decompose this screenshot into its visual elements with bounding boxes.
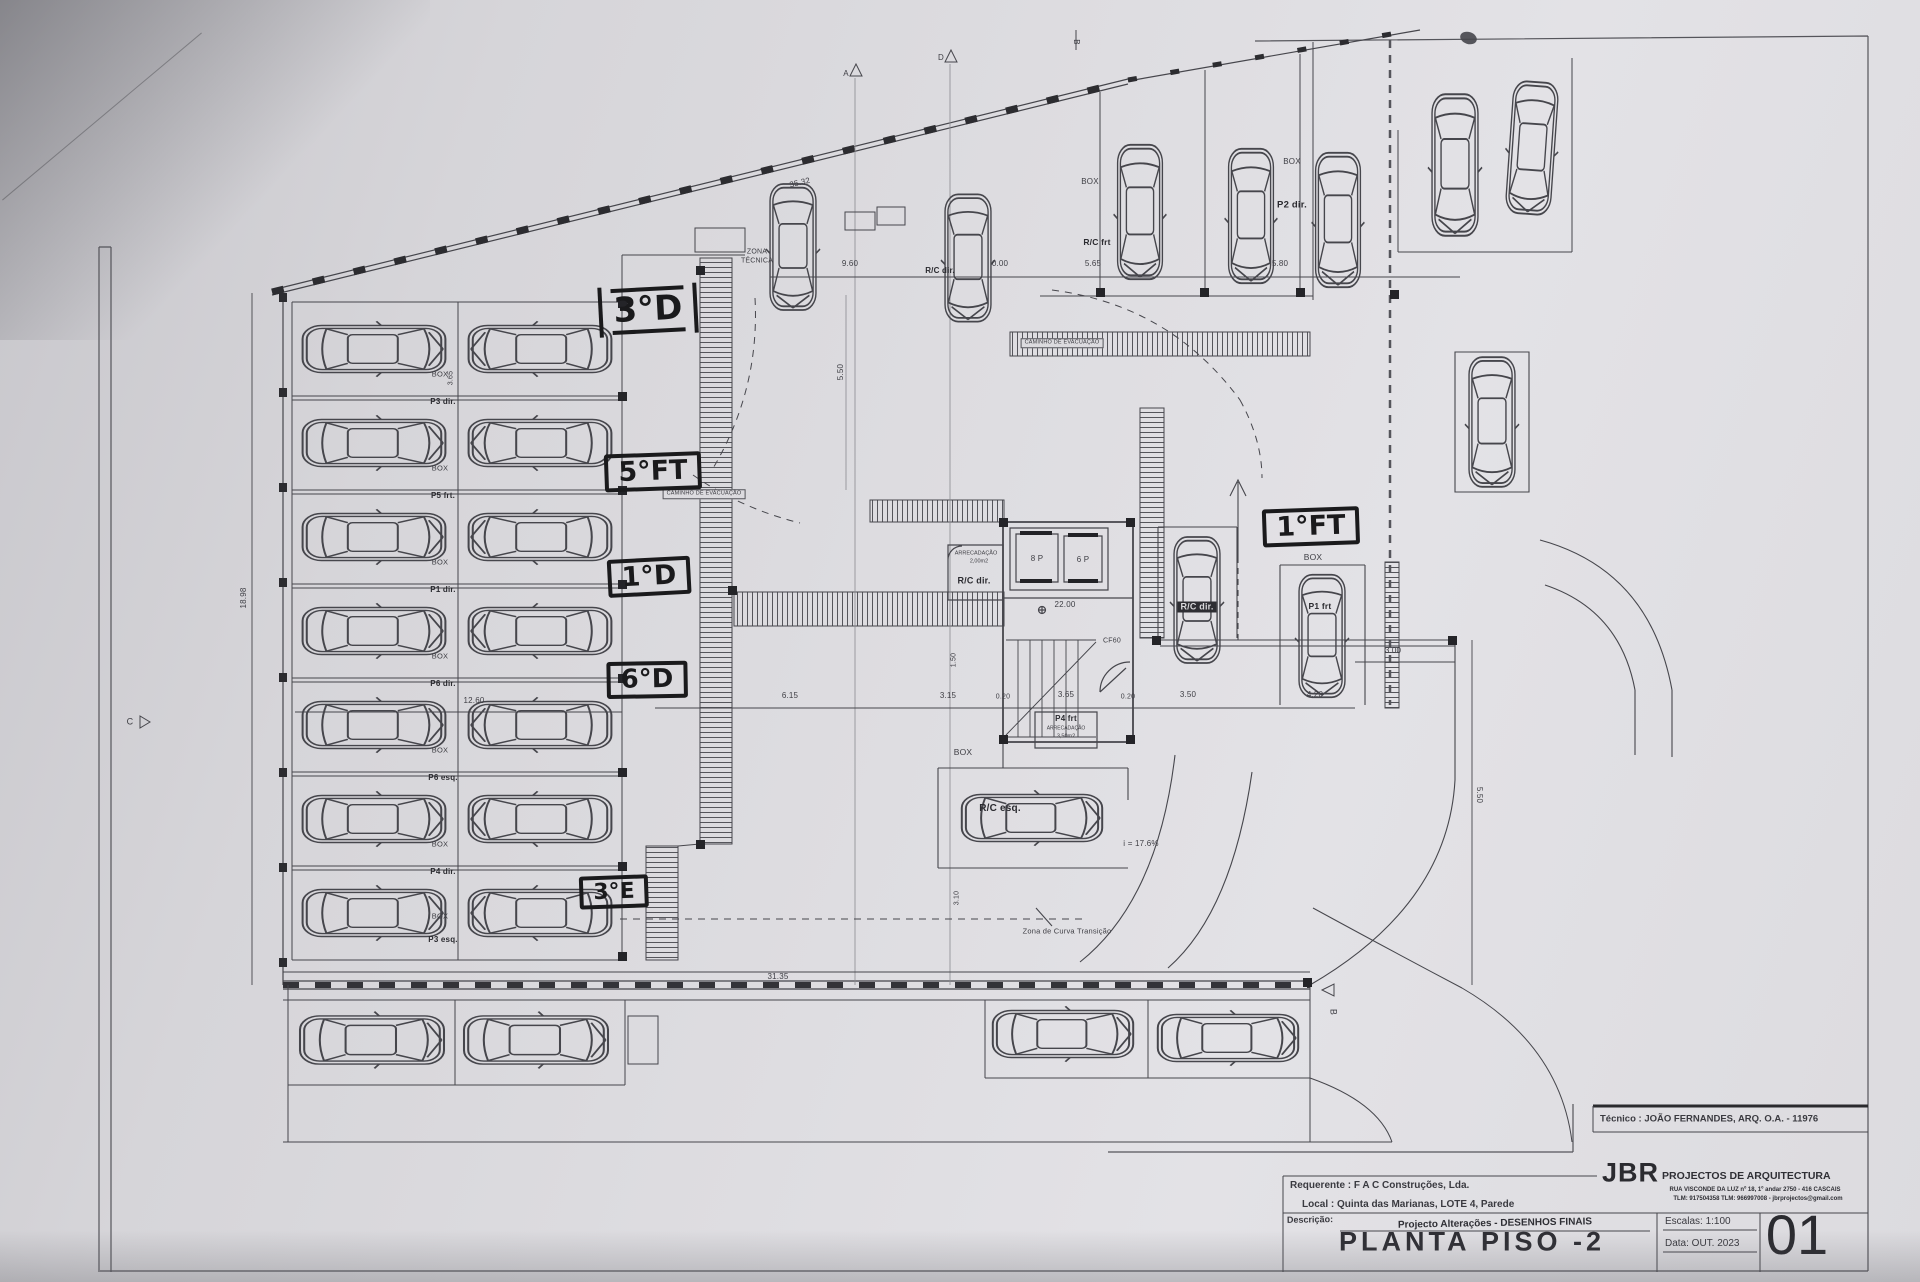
unit-label: P1 frt xyxy=(1309,602,1332,611)
box-label: BOX xyxy=(432,558,448,566)
evacuation-path-label: CAMINHO DE EVACUAÇÃO xyxy=(1021,338,1104,348)
door-label: CF60 xyxy=(1103,638,1121,645)
car-icon xyxy=(962,790,1102,845)
car-icon xyxy=(993,1006,1133,1061)
unit-label: P2 dir. xyxy=(1277,200,1307,210)
dimension-lines xyxy=(252,277,1650,1231)
car-icon xyxy=(1295,575,1349,697)
bottom-strip xyxy=(283,908,1572,1142)
dim-label: 12.60 xyxy=(463,697,484,705)
box-label: BOX xyxy=(1081,178,1099,186)
handwritten-unit-3e: 3°E xyxy=(579,874,649,909)
car-icon xyxy=(1114,145,1167,279)
handwritten-unit-5ft: 5°FT xyxy=(604,451,702,493)
car-icon xyxy=(1312,153,1365,287)
dim-label: 1.50 xyxy=(951,653,958,667)
unit-label: R/C dir. xyxy=(957,577,990,586)
car-icon xyxy=(1225,149,1278,283)
car-icon xyxy=(1501,80,1563,215)
dim-label: 0.20 xyxy=(996,694,1010,701)
dim-label: 5.50 xyxy=(837,364,845,380)
unit-label: P6 dir. xyxy=(430,680,455,688)
dim-label: 5.65 xyxy=(1085,260,1101,268)
car-icon xyxy=(766,184,820,310)
car-icon xyxy=(1465,357,1519,487)
car-icon xyxy=(469,603,612,658)
evacuation-path-label: CAMINHO DE EVACUAÇÃO xyxy=(663,489,746,499)
box-label: BOX xyxy=(432,464,448,472)
box-label: BOX xyxy=(432,746,448,754)
box-label: BOX xyxy=(1304,553,1323,562)
marker-b-top: B xyxy=(1072,39,1080,45)
box-label: BOX xyxy=(1283,158,1301,166)
car-icon xyxy=(469,697,612,752)
dim-label: 9.60 xyxy=(842,260,858,268)
firm-contacts: TLM: 917504358 TLM: 966997008 - jbrproje… xyxy=(1673,1196,1842,1202)
box-label: BOX xyxy=(432,370,448,378)
date-line: Data: OUT. 2023 xyxy=(1665,1239,1739,1249)
requerente-line: Requerente : F A C Construções, Lda. xyxy=(1290,1181,1469,1191)
curve-zone-label: Zona de Curva Transição xyxy=(1023,927,1112,935)
unit-label: P5 frt. xyxy=(431,492,455,500)
unit-label: R/C frt xyxy=(1083,238,1110,247)
dim-label: 3.65 xyxy=(1058,691,1074,699)
box-label: BOX xyxy=(954,748,973,757)
unit-label: P6 esq. xyxy=(428,774,457,782)
storage-label: ARRECADAÇÃO xyxy=(1047,727,1086,732)
marker-b-bottom: B xyxy=(1329,1009,1338,1015)
storage-label: ARRECADAÇÃO xyxy=(955,551,997,557)
car-icon xyxy=(303,321,446,376)
ramp-slope-label: i = 17.6% xyxy=(1123,840,1158,848)
dim-label: 0.20 xyxy=(1121,694,1135,701)
dim-bottom-boundary: 31.35 xyxy=(767,973,788,981)
dim-label: 5.50 xyxy=(1475,787,1483,803)
dim-label: 3.50 xyxy=(1180,691,1196,699)
dim-label: 5.80 xyxy=(1272,260,1288,268)
cars-layer xyxy=(300,80,1563,1068)
dim-left-boundary: 18.98 xyxy=(240,587,248,608)
storage-area-label: 3,50m2 xyxy=(1057,734,1075,740)
storage-area-label: 2,00m2 xyxy=(970,559,988,565)
dim-label: 3.65 xyxy=(448,371,455,385)
car-icon xyxy=(464,1012,608,1069)
car-icon xyxy=(469,509,612,564)
marker-c: C xyxy=(127,718,134,727)
box-label: BOX xyxy=(432,912,448,920)
tecnico-line: Técnico : JOÃO FERNANDES, ARQ. O.A. - 11… xyxy=(1600,1114,1818,1124)
dim-label: 3.00 xyxy=(1385,647,1401,655)
floor-plan-linework xyxy=(0,0,1920,1282)
marker-d: D xyxy=(938,54,944,62)
tecnica-label: TÉCNICA xyxy=(741,258,773,265)
photographed-floor-plan-sheet: 35.32 ZONA TÉCNICA 9.60 0.00 5.65 5.80 1… xyxy=(0,0,1920,1282)
handwritten-unit-1ft: 1°FT xyxy=(1262,506,1360,548)
car-icon xyxy=(1170,537,1224,663)
car-icon xyxy=(303,791,446,846)
unit-label: P4 dir. xyxy=(430,868,455,876)
car-icon xyxy=(469,791,612,846)
car-icon xyxy=(469,415,612,470)
handwritten-unit-1d: 1°D xyxy=(607,556,692,599)
car-icon xyxy=(303,885,446,940)
box-label: BOX xyxy=(432,652,448,660)
unit-label: P3 esq. xyxy=(428,936,457,944)
walls-right xyxy=(1158,352,1672,985)
marker-a: A xyxy=(843,70,849,78)
unit-label: P1 dir. xyxy=(430,586,455,594)
drawing-title: PLANTA PISO -2 xyxy=(1339,1229,1605,1256)
level-label: 22.00 xyxy=(1054,601,1075,609)
descricao-label: Descrição: xyxy=(1287,1215,1333,1225)
car-icon xyxy=(303,509,446,564)
car-icon xyxy=(1428,94,1482,236)
unit-label: P3 dir. xyxy=(430,398,455,406)
car-icon xyxy=(300,1012,444,1069)
lift-label: 8 P xyxy=(1031,555,1044,563)
scale-line: Escalas: 1:100 xyxy=(1665,1217,1731,1227)
zona-label: ZONA xyxy=(747,249,767,256)
unit-label: R/C dir. xyxy=(925,267,955,275)
car-icon xyxy=(1158,1010,1298,1065)
unit-label: R/C esq. xyxy=(979,804,1021,814)
car-icon xyxy=(303,697,446,752)
firm-address: RUA VISCONDE DA LUZ nº 18, 1º andar 2750… xyxy=(1670,1187,1841,1193)
car-icon xyxy=(303,603,446,658)
handwritten-unit-6d: 6°D xyxy=(606,661,687,700)
dim-label: 3.15 xyxy=(940,692,956,700)
hatch-strips xyxy=(646,258,1399,960)
car-icon xyxy=(303,415,446,470)
unit-label: P4 frt xyxy=(1055,715,1077,723)
lift-label: 6 P xyxy=(1077,556,1090,564)
dim-label: 6.15 xyxy=(782,692,798,700)
sheet-number: 01 xyxy=(1766,1207,1828,1263)
dim-label: 3.10 xyxy=(954,891,961,905)
firm-logo: JBR xyxy=(1602,1160,1659,1187)
car-icon xyxy=(941,194,995,321)
handwritten-unit-3d: 3°D xyxy=(597,283,698,338)
car-icon xyxy=(469,321,612,376)
firm-name: PROJECTOS DE ARQUITECTURA xyxy=(1662,1171,1831,1182)
dim-label: 0.00 xyxy=(992,260,1008,268)
unit-label: R/C dir. xyxy=(1177,602,1216,613)
box-label: BOX xyxy=(432,840,448,848)
local-line: Local : Quinta das Marianas, LOTE 4, Par… xyxy=(1302,1200,1514,1210)
dim-label: 4.20 xyxy=(1307,691,1323,699)
